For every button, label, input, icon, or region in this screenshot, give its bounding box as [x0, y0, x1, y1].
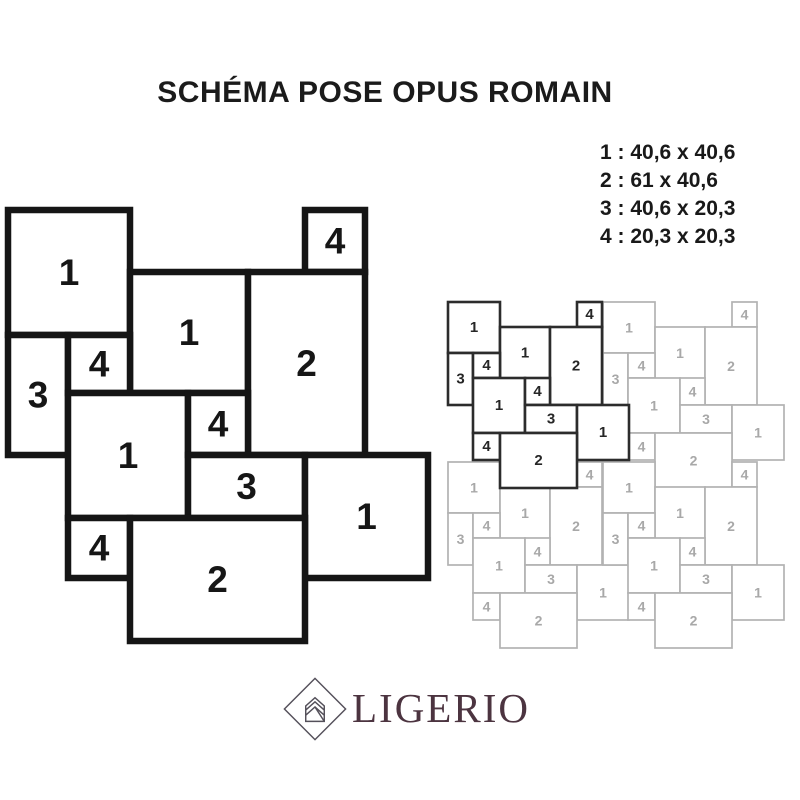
tile-1: 1 — [473, 538, 525, 593]
tile-3: 3 — [525, 565, 577, 593]
svg-text:3: 3 — [612, 531, 620, 547]
tile-2: 2 — [500, 593, 577, 648]
tile-1: 1 — [628, 378, 680, 433]
tile-1: 1 — [628, 538, 680, 593]
tile-3: 3 — [448, 353, 473, 405]
svg-text:1: 1 — [754, 425, 762, 441]
svg-text:2: 2 — [727, 518, 735, 534]
svg-text:1: 1 — [521, 505, 529, 521]
tile-4: 4 — [628, 353, 655, 378]
opus-repeat-pattern: 1412341431421412341431421412341431421412… — [446, 300, 786, 650]
tile-1: 1 — [500, 327, 550, 379]
tile-2: 2 — [550, 327, 602, 405]
tile-4: 4 — [732, 462, 757, 487]
svg-text:3: 3 — [236, 466, 257, 507]
svg-text:1: 1 — [118, 435, 139, 476]
tile-4: 4 — [628, 433, 655, 460]
svg-text:3: 3 — [456, 371, 464, 388]
poster-canvas: SCHÉMA POSE OPUS ROMAIN 1 : 40,6 x 40,6 … — [0, 0, 800, 800]
tile-3: 3 — [680, 565, 732, 593]
svg-text:1: 1 — [59, 252, 80, 293]
svg-text:4: 4 — [741, 307, 749, 323]
svg-text:1: 1 — [495, 558, 503, 574]
tile-4: 4 — [680, 538, 705, 565]
svg-text:3: 3 — [457, 531, 465, 547]
legend-item-size-4: 4 : 20,3 x 20,3 — [600, 223, 735, 251]
tile-4: 4 — [628, 513, 655, 538]
tile-1: 1 — [732, 565, 784, 620]
svg-text:4: 4 — [586, 467, 594, 483]
svg-text:4: 4 — [325, 221, 346, 262]
page-title: SCHÉMA POSE OPUS ROMAIN — [0, 76, 770, 110]
tile-4: 4 — [577, 462, 602, 487]
tile-3: 3 — [525, 405, 577, 433]
svg-text:2: 2 — [727, 358, 735, 374]
svg-text:1: 1 — [470, 319, 478, 336]
ligerio-diamond-icon — [281, 675, 349, 743]
svg-text:1: 1 — [676, 505, 684, 521]
svg-text:4: 4 — [741, 467, 749, 483]
tile-1: 1 — [577, 565, 629, 620]
tile-4: 4 — [305, 210, 365, 272]
svg-text:1: 1 — [521, 345, 529, 362]
svg-text:1: 1 — [495, 397, 503, 414]
tile-3: 3 — [603, 513, 628, 565]
legend-item-size-1: 1 : 40,6 x 40,6 — [600, 139, 735, 167]
tile-1: 1 — [130, 272, 248, 393]
svg-text:1: 1 — [625, 320, 633, 336]
tile-4: 4 — [473, 593, 500, 620]
svg-text:4: 4 — [89, 528, 110, 569]
svg-text:4: 4 — [638, 518, 646, 534]
tile-1: 1 — [577, 405, 629, 460]
tile-1: 1 — [603, 302, 655, 353]
svg-text:4: 4 — [689, 544, 697, 560]
legend-item-size-2: 2 : 61 x 40,6 — [600, 167, 735, 195]
tile-1: 1 — [500, 487, 550, 539]
svg-text:4: 4 — [533, 383, 542, 400]
svg-text:3: 3 — [702, 411, 710, 427]
legend-item-size-3: 3 : 40,6 x 20,3 — [600, 195, 735, 223]
svg-text:1: 1 — [650, 558, 658, 574]
tile-2: 2 — [655, 593, 732, 648]
svg-text:3: 3 — [28, 375, 49, 416]
svg-text:3: 3 — [547, 411, 555, 428]
svg-text:1: 1 — [625, 480, 633, 496]
tile-4: 4 — [525, 378, 550, 405]
svg-text:2: 2 — [572, 358, 580, 375]
svg-text:1: 1 — [356, 496, 377, 537]
svg-text:4: 4 — [482, 357, 491, 374]
svg-text:4: 4 — [482, 438, 491, 455]
tile-1: 1 — [68, 393, 188, 518]
svg-text:2: 2 — [207, 559, 228, 600]
tile-4: 4 — [732, 302, 757, 327]
tile-1: 1 — [655, 327, 705, 379]
tile-2: 2 — [130, 518, 305, 641]
tile-2: 2 — [500, 433, 577, 488]
tile-3: 3 — [188, 455, 305, 518]
svg-text:2: 2 — [690, 453, 698, 469]
svg-text:2: 2 — [296, 343, 317, 384]
svg-text:1: 1 — [599, 585, 607, 601]
svg-text:4: 4 — [208, 404, 229, 445]
tile-4: 4 — [68, 335, 130, 393]
tile-2: 2 — [550, 487, 602, 565]
tile-4: 4 — [525, 538, 550, 565]
tile-3: 3 — [603, 353, 628, 405]
house-glyph — [306, 698, 325, 722]
svg-text:1: 1 — [754, 585, 762, 601]
tile-4: 4 — [188, 393, 248, 455]
tile-1: 1 — [603, 462, 655, 513]
tile-1: 1 — [305, 455, 428, 578]
svg-text:2: 2 — [534, 452, 542, 469]
svg-text:2: 2 — [572, 518, 580, 534]
svg-text:4: 4 — [638, 439, 646, 455]
svg-text:2: 2 — [535, 613, 543, 629]
opus-layout-diagram: 141234143142 — [4, 206, 432, 645]
tile-1: 1 — [8, 210, 130, 335]
svg-text:3: 3 — [612, 371, 620, 387]
tile-4: 4 — [68, 518, 130, 578]
svg-text:4: 4 — [638, 599, 646, 615]
tile-1: 1 — [732, 405, 784, 460]
tile-4: 4 — [473, 353, 500, 378]
svg-text:1: 1 — [470, 480, 478, 496]
tile-1: 1 — [448, 462, 500, 513]
tile-1: 1 — [655, 487, 705, 539]
tile-3: 3 — [680, 405, 732, 433]
tile-4: 4 — [577, 302, 602, 327]
svg-text:4: 4 — [483, 599, 491, 615]
svg-text:4: 4 — [534, 544, 542, 560]
tile-1: 1 — [473, 378, 525, 433]
tile-2: 2 — [705, 487, 757, 565]
svg-text:4: 4 — [585, 306, 594, 323]
diamond-outline — [284, 678, 345, 739]
tile-2: 2 — [655, 433, 732, 488]
svg-text:4: 4 — [689, 384, 697, 400]
tile-4: 4 — [680, 378, 705, 405]
svg-text:2: 2 — [690, 613, 698, 629]
tile-1: 1 — [448, 302, 500, 353]
tile-4: 4 — [628, 593, 655, 620]
size-legend: 1 : 40,6 x 40,6 2 : 61 x 40,6 3 : 40,6 x… — [600, 139, 735, 251]
tile-3: 3 — [8, 335, 68, 455]
tile-2: 2 — [248, 272, 365, 455]
svg-text:3: 3 — [547, 571, 555, 587]
svg-text:4: 4 — [638, 358, 646, 374]
svg-text:1: 1 — [179, 312, 200, 353]
svg-text:1: 1 — [599, 424, 607, 441]
svg-text:1: 1 — [650, 398, 658, 414]
tile-2: 2 — [705, 327, 757, 405]
svg-text:4: 4 — [483, 518, 491, 534]
tile-4: 4 — [473, 433, 500, 460]
svg-text:3: 3 — [702, 571, 710, 587]
svg-text:4: 4 — [89, 344, 110, 385]
svg-text:1: 1 — [676, 345, 684, 361]
tile-3: 3 — [448, 513, 473, 565]
brand-name: LIGERIO — [352, 684, 530, 732]
tile-4: 4 — [473, 513, 500, 538]
